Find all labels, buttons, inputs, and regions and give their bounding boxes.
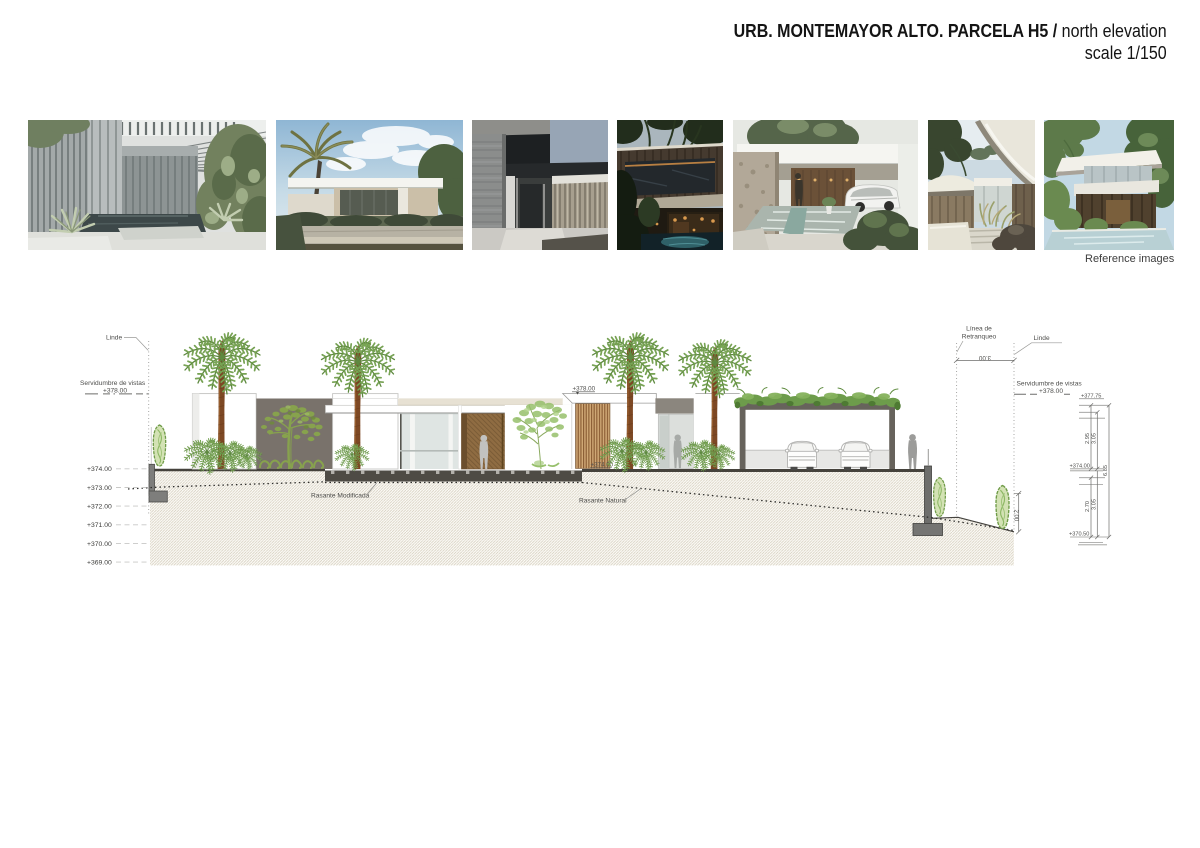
svg-text:+378.00: +378.00 bbox=[1039, 388, 1063, 395]
svg-text:+373.00: +373.00 bbox=[87, 485, 112, 492]
svg-text:Servidumbre de vistas: Servidumbre de vistas bbox=[80, 380, 146, 387]
svg-text:+370.00: +370.00 bbox=[87, 541, 112, 548]
svg-text:2.95: 2.95 bbox=[1085, 433, 1091, 444]
svg-text:3.00: 3.00 bbox=[978, 354, 991, 361]
svg-text:6.85: 6.85 bbox=[1103, 465, 1109, 476]
svg-text:Rasante Modificada: Rasante Modificada bbox=[311, 493, 370, 500]
svg-text:Linde: Linde bbox=[106, 335, 122, 342]
svg-text:+374.00: +374.00 bbox=[1070, 464, 1090, 470]
svg-text:Linde: Linde bbox=[1034, 335, 1050, 342]
svg-text:+371.00: +371.00 bbox=[87, 522, 112, 529]
svg-text:Rasante Natural: Rasante Natural bbox=[579, 498, 627, 505]
svg-text:3.05: 3.05 bbox=[1092, 433, 1098, 444]
svg-text:Retranqueo: Retranqueo bbox=[962, 333, 997, 340]
svg-text:2.70: 2.70 bbox=[1085, 501, 1091, 512]
svg-text:+374.00: +374.00 bbox=[87, 466, 112, 473]
svg-text:Servidumbre de vistas: Servidumbre de vistas bbox=[1017, 381, 1083, 388]
svg-text:+377.75: +377.75 bbox=[1081, 393, 1101, 399]
svg-text:2.00: 2.00 bbox=[1013, 510, 1019, 522]
svg-text:+369.00: +369.00 bbox=[87, 560, 112, 567]
svg-text:Línea de: Línea de bbox=[966, 325, 992, 332]
svg-text:+372.00: +372.00 bbox=[87, 504, 112, 511]
svg-text:3.05: 3.05 bbox=[1092, 499, 1098, 510]
svg-text:+370.50: +370.50 bbox=[1069, 531, 1089, 537]
